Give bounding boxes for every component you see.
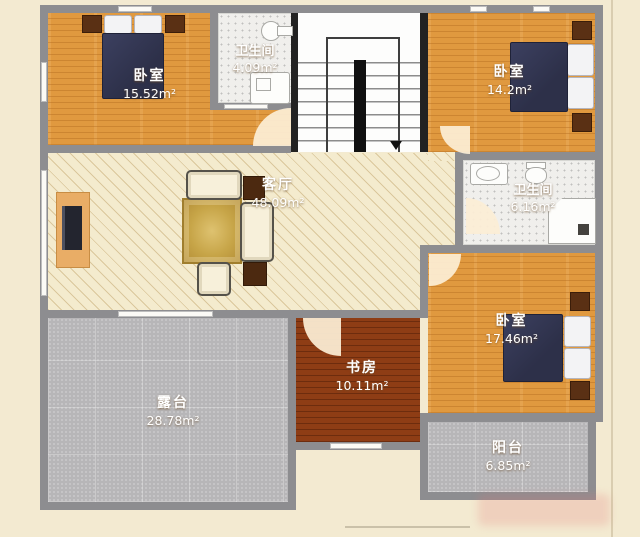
pillow [567,77,594,109]
wall-terrace-right [288,310,296,510]
window-bedroom-tr-top-1 [470,6,487,12]
wall-bedroom-br-top [428,245,603,253]
nightstand [165,15,185,33]
window-bedroom-tl-left [41,62,47,102]
window-living-left [41,170,47,296]
watermark-blur [478,494,610,526]
pillow [567,44,594,76]
window-study-bottom [330,443,382,449]
toilet-tank [277,26,293,36]
sliding-door-living-terrace [118,311,213,317]
label-bathroom-right: 卫生间 6.16m² [490,183,576,215]
pillow [134,15,162,34]
label-balcony: 阳台 6.85m² [463,440,553,473]
sofa [186,170,242,200]
floor-plan: 卧室 15.52m² 卫生间 4.09m² 卧室 14.2m² 客厅 48.09… [0,0,640,537]
passage-living-east [428,152,455,161]
area-rug [182,198,242,264]
toilet-bowl [525,167,547,184]
armchair [197,262,231,296]
pillow [564,348,591,379]
wall-balcony-right [588,413,596,500]
nightstand [572,21,592,40]
sink-basin [476,166,500,181]
wall-living-top [40,145,291,153]
stair-center-divider [354,60,366,152]
staircase [291,13,428,152]
side-table [243,262,267,286]
window-bedroom-tr-top-2 [533,6,550,12]
label-living-room: 客厅 48.09m² [237,177,319,210]
shower-drain [256,78,271,91]
wall-balcony-left [420,413,428,500]
label-study: 书房 10.11m² [318,360,406,393]
wall-bathroom-right-left [455,152,463,253]
wall-terrace-bottom [40,502,296,510]
label-bedroom-top-right: 卧室 14.2m² [462,64,557,97]
wall-bedroom-br-bottom [420,413,603,422]
tv [62,206,82,250]
pillow [104,15,132,34]
wall-bedroom-br-left [420,245,428,318]
door-threshold-bathroom-top [224,104,268,109]
nightstand [570,381,590,400]
label-bathroom-top: 卫生间 4.09m² [212,44,298,76]
nightstand [570,292,590,311]
sofa [240,202,274,262]
shower-knob [578,224,589,235]
pillow [564,316,591,347]
nightstand [572,113,592,132]
paper-edge-right [611,0,613,537]
wall-bathroom-right-top [463,152,603,160]
label-bedroom-bottom-right: 卧室 17.46m² [464,313,559,346]
paper-edge-shadow [345,526,470,528]
stairs-down-arrow [390,141,402,150]
label-bedroom-top-left: 卧室 15.52m² [92,68,207,101]
wall-right [595,5,603,422]
window-bedroom-tl-top [118,6,152,12]
label-terrace: 露台 28.78m² [128,395,218,428]
nightstand [82,15,102,33]
wall-study-top [288,310,428,318]
